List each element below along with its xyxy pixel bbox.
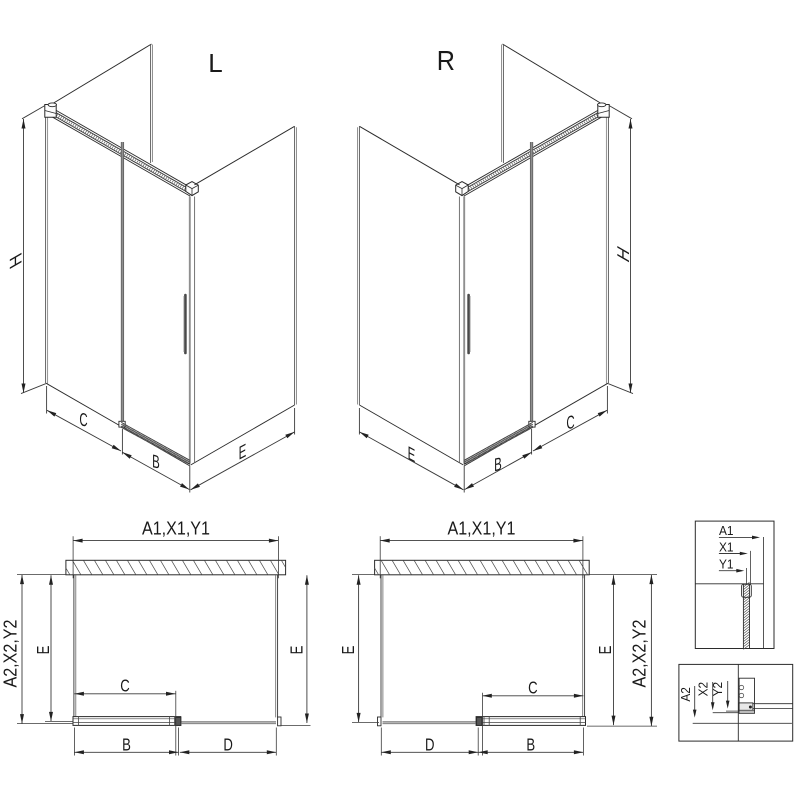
svg-text:B: B [526,735,535,754]
svg-text:Y1: Y1 [719,557,734,572]
svg-text:A2: A2 [678,687,693,702]
svg-text:E: E [408,443,416,467]
svg-text:B: B [122,735,131,754]
svg-text:E: E [34,646,53,655]
svg-text:E: E [596,646,615,655]
svg-text:L: L [208,48,222,78]
svg-text:B: B [494,454,502,476]
svg-text:B: B [152,452,160,474]
svg-text:A2,X2,Y2: A2,X2,Y2 [629,620,649,688]
svg-text:C: C [120,677,129,696]
svg-text:X2: X2 [696,682,711,697]
svg-text:D: D [425,735,434,754]
svg-text:E: E [288,646,307,655]
svg-text:A1,X1,Y1: A1,X1,Y1 [142,519,210,539]
svg-text:D: D [223,735,232,754]
svg-text:A1: A1 [719,523,734,538]
svg-text:X1: X1 [719,540,734,555]
svg-text:C: C [528,679,537,698]
svg-text:A2,X2,Y2: A2,X2,Y2 [1,620,21,688]
svg-text:C: C [566,412,574,434]
svg-text:C: C [79,410,87,432]
svg-text:E: E [339,646,358,655]
svg-text:Y2: Y2 [711,682,726,697]
svg-text:R: R [437,45,455,77]
svg-text:E: E [239,441,247,465]
svg-text:A1,X1,Y1: A1,X1,Y1 [448,519,516,539]
